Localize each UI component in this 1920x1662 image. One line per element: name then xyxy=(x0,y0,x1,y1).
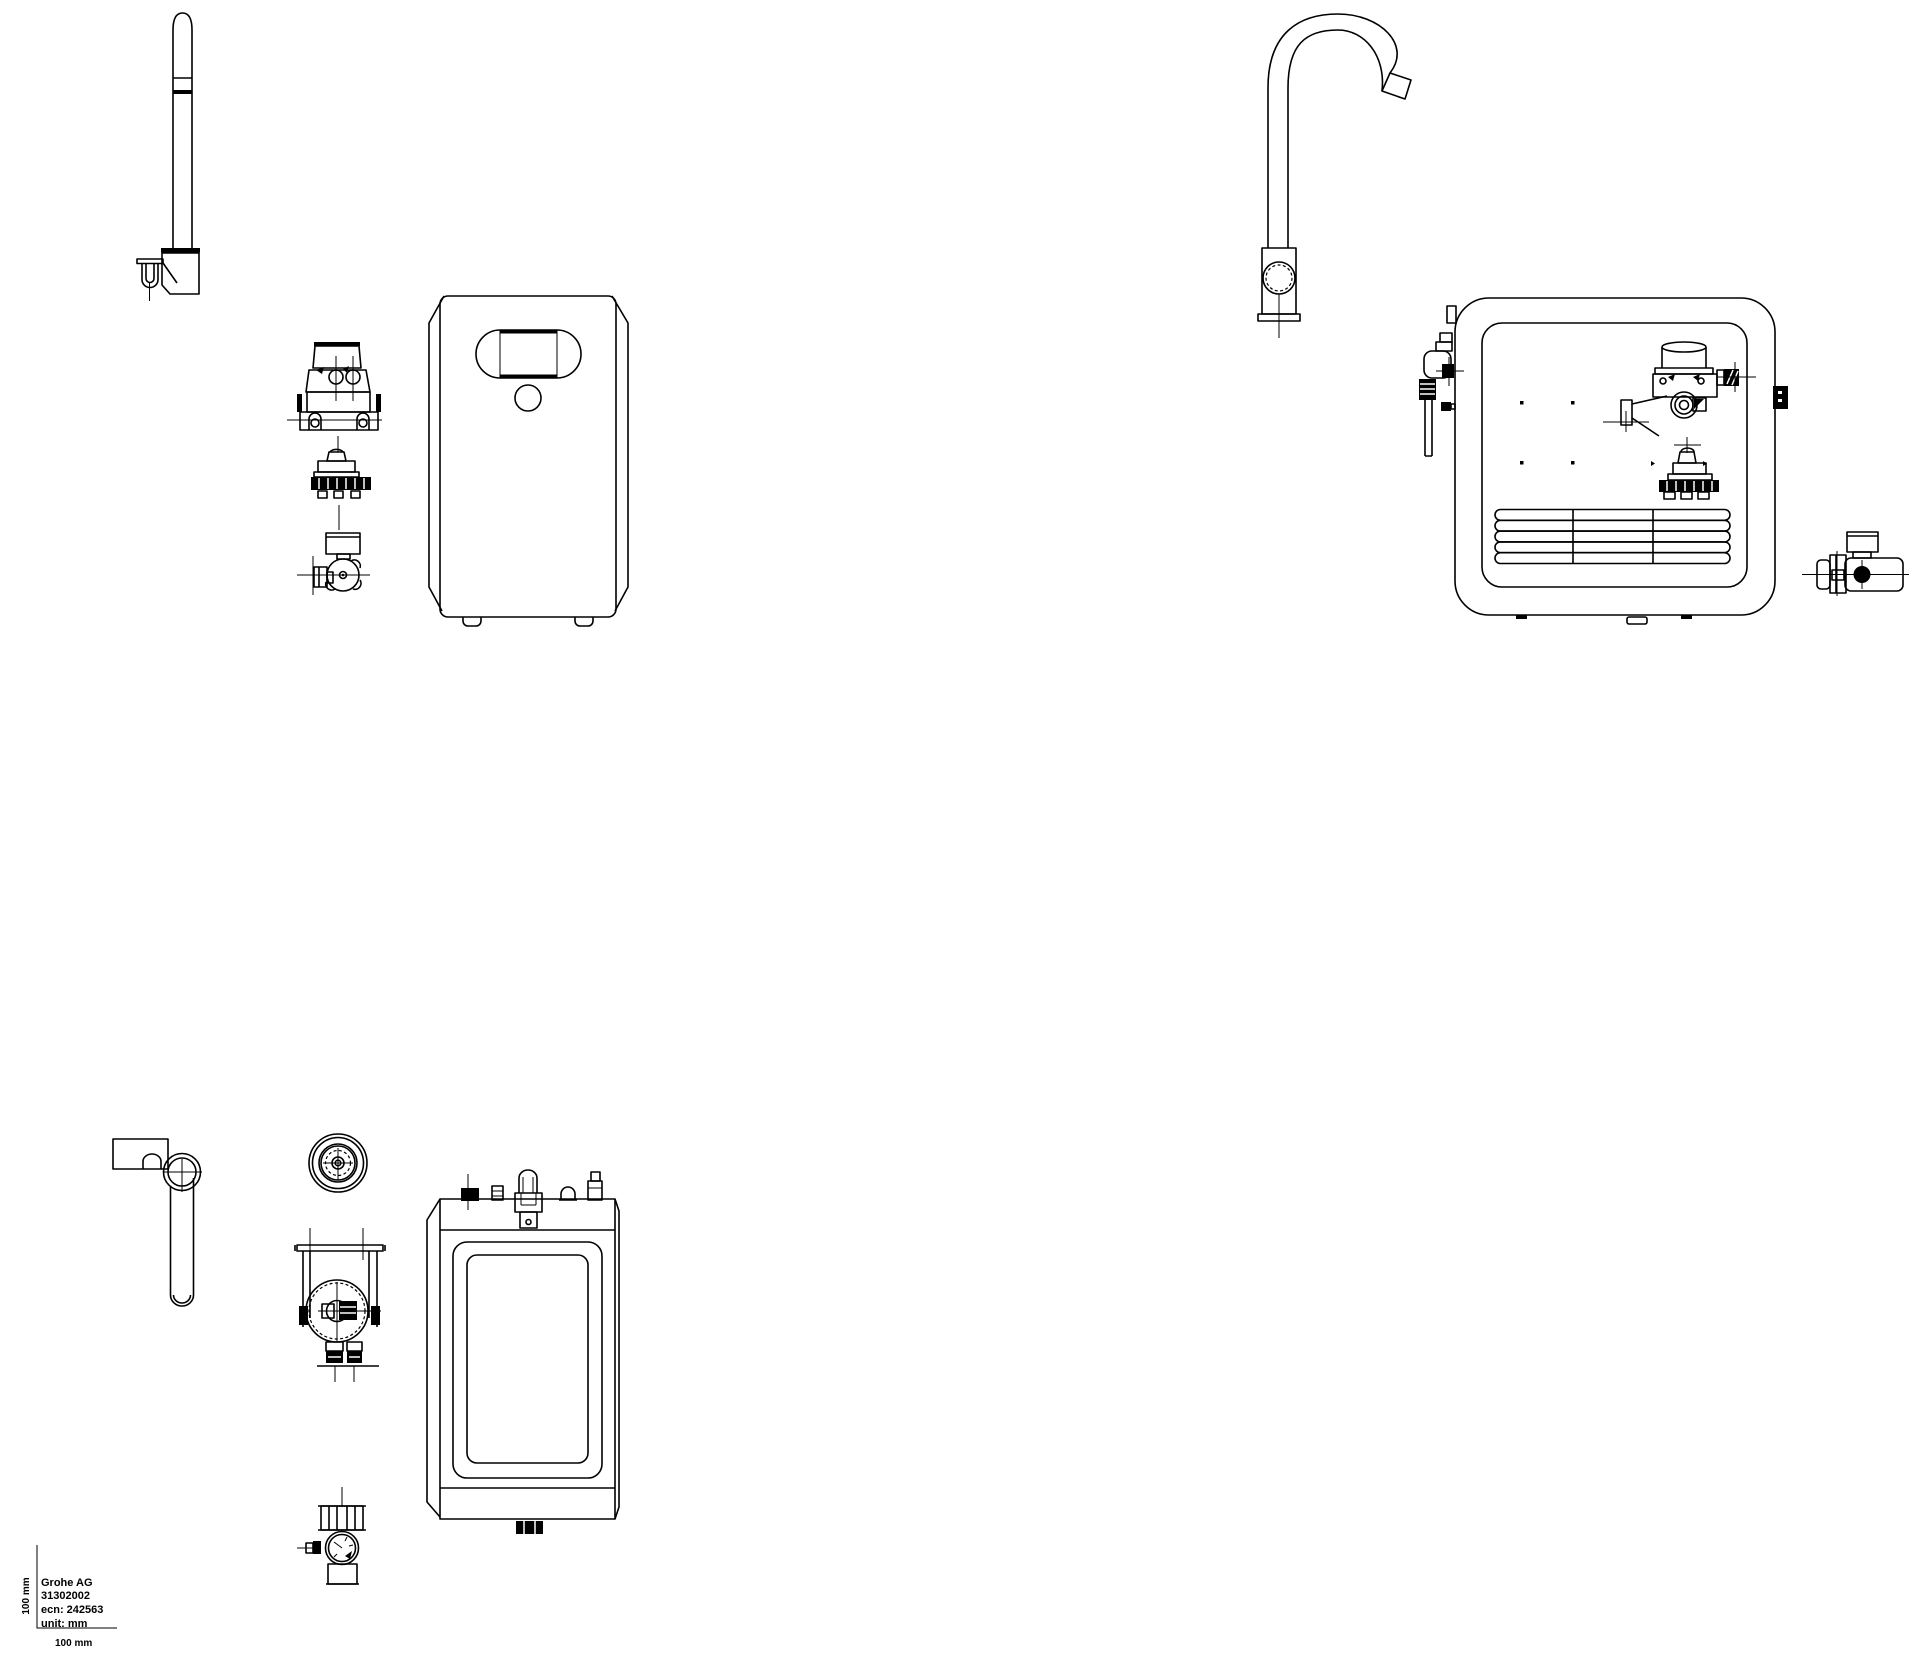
mounting-bracket xyxy=(1603,396,1667,436)
filter-head-side-view xyxy=(287,342,382,452)
unit-label: unit: mm xyxy=(41,1618,88,1630)
faucet-pillar-side-view xyxy=(137,13,200,301)
bottom-connector xyxy=(516,1521,543,1534)
scale-vertical-label: 100 mm xyxy=(21,1577,32,1614)
back-panel xyxy=(1482,323,1747,587)
hose xyxy=(1425,400,1432,456)
knob-top-view xyxy=(309,1134,367,1192)
angle-valve-side-view xyxy=(1802,532,1909,596)
faucet-top-view xyxy=(113,1139,202,1306)
pressure-regulator-front-view xyxy=(297,1487,366,1584)
mounting-bracket xyxy=(113,1139,168,1169)
faucet-handle xyxy=(137,259,163,264)
chiller-housing xyxy=(440,296,616,617)
foot xyxy=(463,617,481,626)
gauge-box xyxy=(326,533,360,554)
technical-drawing-page: Grohe AG 31302002 ecn: 242563 unit: mm 1… xyxy=(0,0,1920,1662)
gooseneck-faucet-front-view xyxy=(1258,14,1411,338)
water-inlet-fitting xyxy=(1419,333,1464,456)
spout-tip xyxy=(1382,73,1411,99)
power-connector xyxy=(1773,386,1788,409)
dispense-button xyxy=(515,385,541,411)
chiller-top-view xyxy=(427,1170,619,1534)
shutoff-valve-side-view xyxy=(297,533,370,595)
oval-fitting xyxy=(559,1187,577,1200)
handle-recess xyxy=(476,330,581,378)
co2-valve xyxy=(519,1170,537,1193)
lever-ball xyxy=(1263,262,1295,294)
outlet-fitting xyxy=(591,1172,600,1181)
title-block: Grohe AG 31302002 ecn: 242563 unit: mm 1… xyxy=(21,1545,117,1649)
foot xyxy=(1627,617,1647,624)
ball-valve xyxy=(1671,392,1706,418)
lid-seal xyxy=(453,1242,602,1478)
foot xyxy=(575,617,593,626)
spout-tube xyxy=(171,1178,194,1306)
filter-cartridge-cap-side-view xyxy=(311,449,371,530)
filter-head-back-view xyxy=(1653,342,1756,397)
gauge-box xyxy=(1847,532,1878,552)
technical-drawing-canvas: Grohe AG 31302002 ecn: 242563 unit: mm 1… xyxy=(0,0,1920,1662)
hex-nut xyxy=(321,1506,363,1530)
ecn-label: ecn: 242563 xyxy=(41,1604,103,1616)
vent-grille xyxy=(1495,510,1730,564)
chiller-front-view xyxy=(429,296,628,626)
manufacturer-label: Grohe AG xyxy=(41,1577,93,1589)
chiller-housing-back xyxy=(1455,298,1775,615)
small-fitting xyxy=(492,1186,503,1200)
filter-head-front-view xyxy=(295,1228,385,1382)
chiller-back-view xyxy=(1419,298,1788,624)
filter-cartridge-back-view xyxy=(1659,437,1719,499)
scale-horizontal-label: 100 mm xyxy=(55,1638,92,1649)
product-number-label: 31302002 xyxy=(41,1590,90,1602)
